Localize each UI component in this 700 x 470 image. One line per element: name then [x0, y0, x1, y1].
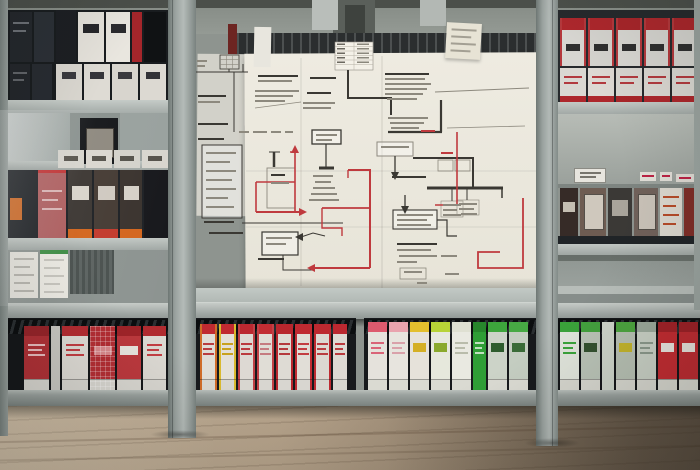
archive-room-photo — [0, 0, 700, 470]
screenshot-stage — [0, 0, 700, 470]
vignette — [0, 0, 700, 470]
